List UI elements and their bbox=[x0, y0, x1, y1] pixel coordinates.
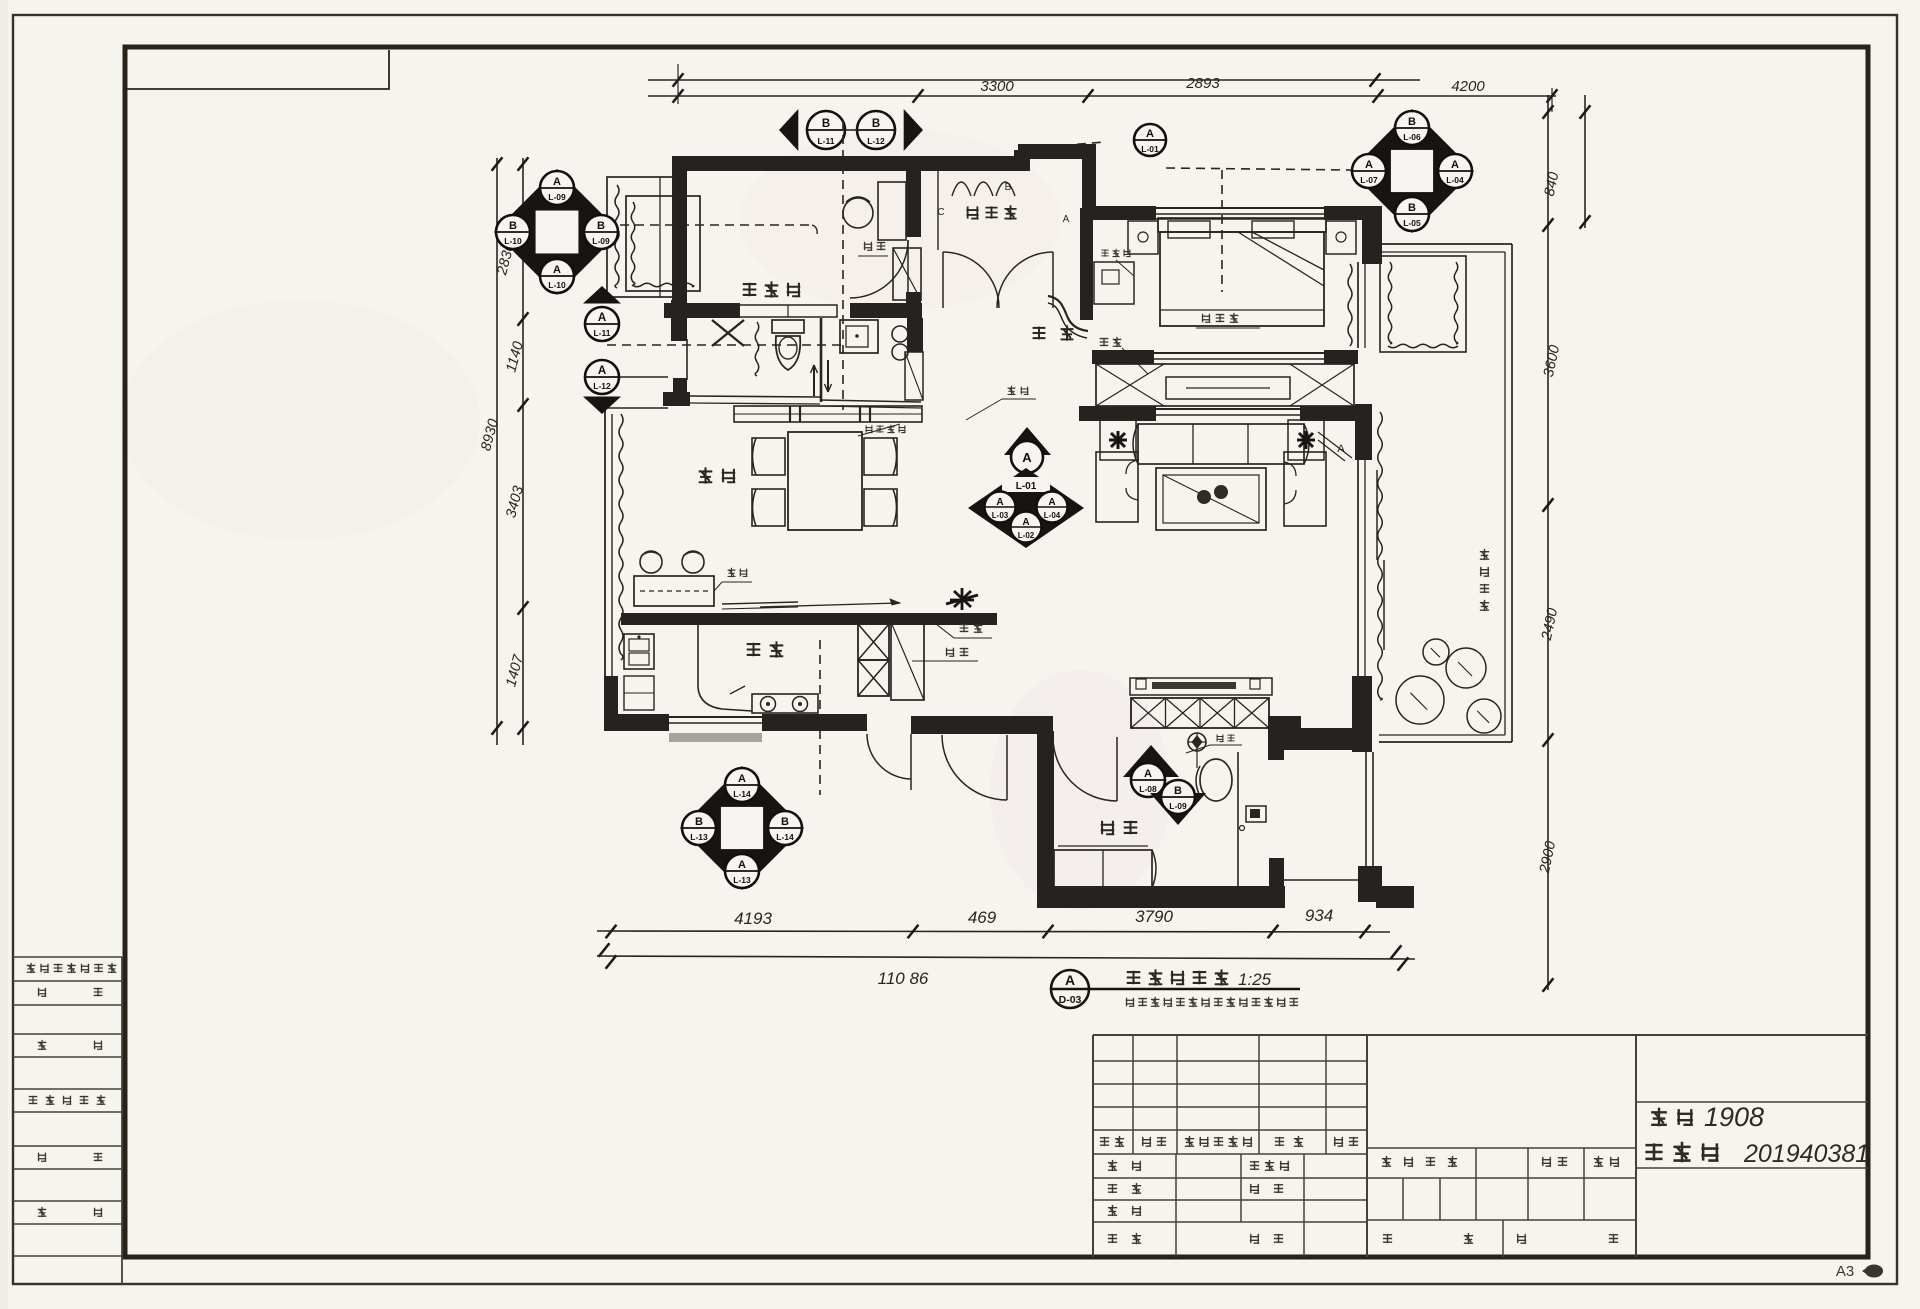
svg-text:L-04: L-04 bbox=[1044, 511, 1061, 520]
svg-text:469: 469 bbox=[968, 908, 997, 927]
svg-text:1908: 1908 bbox=[1704, 1102, 1764, 1132]
svg-text:A: A bbox=[1144, 768, 1152, 780]
svg-text:L-05: L-05 bbox=[1403, 218, 1421, 228]
svg-text:L-13: L-13 bbox=[733, 875, 751, 885]
svg-text:A: A bbox=[738, 773, 746, 785]
svg-text:L-12: L-12 bbox=[867, 136, 885, 146]
svg-text:2893: 2893 bbox=[1185, 75, 1220, 92]
svg-text:A: A bbox=[1365, 159, 1373, 171]
svg-text:A: A bbox=[1022, 450, 1032, 465]
svg-text:A: A bbox=[598, 312, 606, 324]
svg-text:L-14: L-14 bbox=[733, 789, 751, 799]
svg-text:L-04: L-04 bbox=[1446, 175, 1464, 185]
svg-text:B: B bbox=[1174, 785, 1182, 797]
svg-text:B: B bbox=[597, 220, 605, 232]
svg-text:L-01: L-01 bbox=[1016, 481, 1037, 492]
svg-text:A: A bbox=[1337, 443, 1345, 455]
svg-text:A: A bbox=[1022, 517, 1029, 528]
svg-text:L-11: L-11 bbox=[817, 136, 834, 146]
svg-text:B: B bbox=[781, 816, 789, 828]
svg-text:L-03: L-03 bbox=[992, 511, 1009, 520]
svg-text:B: B bbox=[1005, 182, 1012, 193]
svg-text:L-14: L-14 bbox=[776, 832, 794, 842]
svg-text:C: C bbox=[937, 207, 944, 218]
svg-text:B: B bbox=[695, 816, 703, 828]
svg-text:110 86: 110 86 bbox=[878, 969, 929, 988]
svg-text:A: A bbox=[598, 365, 606, 377]
svg-text:L-09: L-09 bbox=[592, 236, 610, 246]
svg-text:B: B bbox=[872, 118, 880, 130]
svg-text:L-01: L-01 bbox=[1141, 144, 1159, 154]
svg-text:A: A bbox=[553, 176, 561, 188]
svg-text:A: A bbox=[1048, 497, 1055, 508]
svg-text:L-09: L-09 bbox=[1169, 801, 1187, 811]
svg-text:D-03: D-03 bbox=[1059, 994, 1082, 1006]
svg-text:L-08: L-08 bbox=[1139, 784, 1157, 794]
svg-text:3300: 3300 bbox=[980, 78, 1014, 95]
svg-text:B: B bbox=[509, 220, 517, 232]
svg-text:3790: 3790 bbox=[1135, 907, 1173, 926]
svg-text:1:25: 1:25 bbox=[1238, 970, 1272, 989]
svg-text:A: A bbox=[738, 859, 746, 871]
svg-text:A: A bbox=[1451, 159, 1459, 171]
svg-text:L-07: L-07 bbox=[1360, 175, 1378, 185]
svg-text:L-12: L-12 bbox=[593, 381, 611, 391]
svg-text:4200: 4200 bbox=[1451, 78, 1485, 95]
svg-text:L-10: L-10 bbox=[504, 236, 522, 246]
svg-text:L-10: L-10 bbox=[548, 280, 566, 290]
svg-text:A: A bbox=[1063, 214, 1070, 225]
svg-text:A3: A3 bbox=[1836, 1263, 1854, 1280]
svg-text:B: B bbox=[822, 118, 830, 130]
svg-text:L-06: L-06 bbox=[1403, 132, 1421, 142]
svg-text:A: A bbox=[1065, 972, 1075, 988]
svg-text:B: B bbox=[1408, 202, 1416, 214]
svg-text:4193: 4193 bbox=[734, 909, 772, 928]
svg-text:B: B bbox=[1408, 116, 1416, 128]
svg-text:934: 934 bbox=[1305, 906, 1333, 925]
svg-text:A: A bbox=[1146, 128, 1154, 140]
svg-text:L-13: L-13 bbox=[690, 832, 708, 842]
svg-text:L-11: L-11 bbox=[593, 328, 610, 338]
svg-text:A: A bbox=[996, 497, 1003, 508]
svg-text:A: A bbox=[553, 264, 561, 276]
svg-text:L-02: L-02 bbox=[1018, 531, 1035, 540]
svg-text:201940381: 201940381 bbox=[1743, 1140, 1869, 1168]
svg-text:L-09: L-09 bbox=[548, 192, 566, 202]
